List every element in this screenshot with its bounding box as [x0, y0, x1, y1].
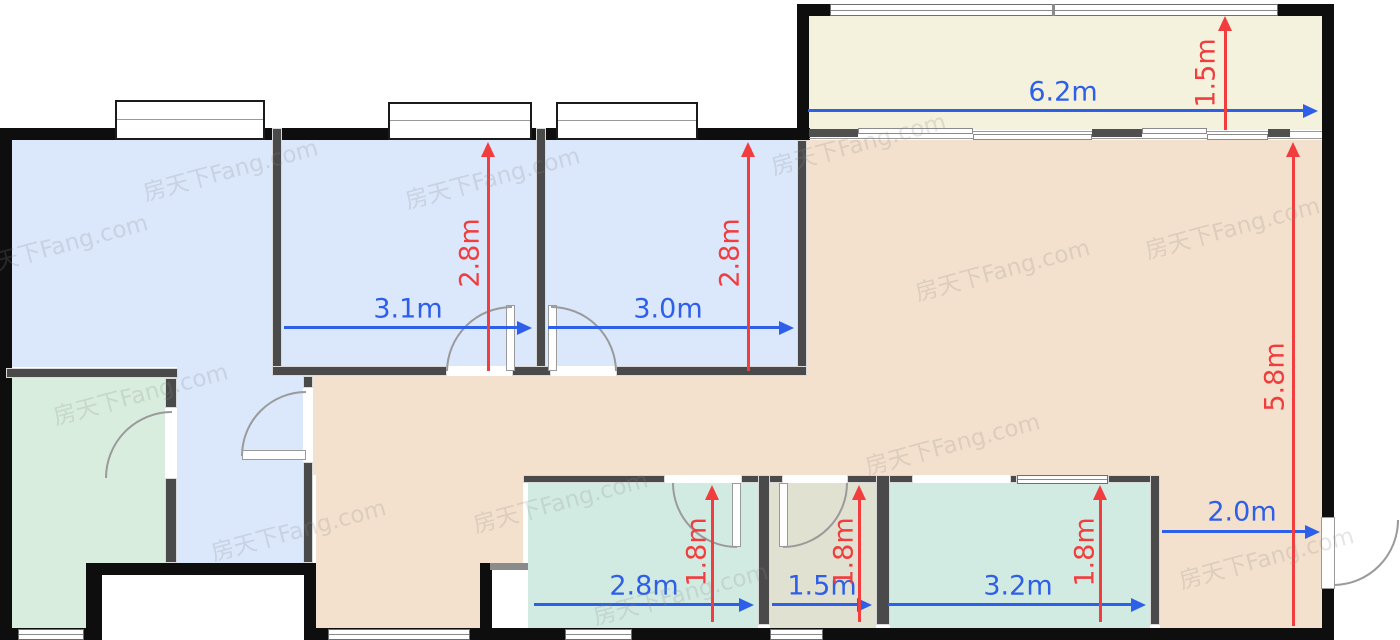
wall-balcony-left — [797, 4, 809, 140]
dim-label-1.8m: 1.8m — [1070, 517, 1101, 586]
wall-green-room-top — [6, 368, 178, 378]
dim-line-1.5m — [772, 603, 859, 606]
wall-bedrooms-bottom — [512, 366, 551, 376]
dim-arrowhead — [1305, 525, 1320, 539]
dim-label-5.8m: 5.8m — [1260, 342, 1291, 411]
dim-arrowhead — [852, 485, 866, 500]
room-bedroom-right — [546, 140, 797, 366]
wall-bath-right — [1150, 475, 1160, 625]
dim-label-1.8m: 1.8m — [682, 517, 713, 586]
dim-label-2.8m: 2.8m — [609, 571, 678, 602]
window-bathroom-top — [1017, 475, 1108, 484]
sliding-door-frame — [809, 129, 858, 137]
dim-arrowhead — [779, 321, 794, 335]
wall-bedrooms-bottom — [616, 366, 807, 376]
entrance-door-arc — [1334, 520, 1398, 585]
window-bottom — [18, 629, 84, 640]
dim-line-6.2m — [808, 109, 1305, 112]
sliding-door-panel — [858, 128, 973, 134]
bay-window — [388, 102, 532, 140]
room-bathroom-right — [890, 483, 1150, 628]
dim-label-1.5m: 1.5m — [1191, 38, 1222, 107]
dim-label-3.1m: 3.1m — [373, 294, 442, 325]
room-living-dining — [316, 475, 523, 563]
dim-arrowhead — [517, 321, 532, 335]
wall-shaft-connector — [490, 563, 528, 570]
door-opening — [165, 408, 177, 478]
balcony-window-mullion — [1052, 4, 1055, 16]
wall-bedroom-living — [797, 140, 807, 376]
dim-arrowhead — [739, 598, 754, 612]
dim-line-5.8m — [1292, 155, 1295, 626]
wall-hallway-right — [303, 376, 313, 388]
bay-window — [115, 100, 265, 140]
sliding-door-frame — [1092, 129, 1142, 137]
door-leaf — [779, 483, 788, 547]
door-leaf — [506, 305, 515, 371]
room-living-dining — [313, 376, 1322, 475]
dim-line-1.5m — [1224, 29, 1227, 130]
dim-label-3.2m: 3.2m — [983, 571, 1052, 602]
room-hallway — [177, 367, 303, 563]
window-bottom — [770, 629, 823, 640]
wall-hallway-right — [303, 462, 313, 563]
door-leaf — [242, 450, 306, 460]
wall-bedrooms-bottom — [272, 366, 447, 376]
dim-arrowhead — [1131, 598, 1146, 612]
floor-plan: 6.2m3.1m3.0m2.0m2.8m1.5m3.2m2.8m2.8m1.5m… — [0, 0, 1400, 640]
wall-green-room-right — [165, 478, 177, 563]
dim-line-2.8m — [534, 603, 741, 606]
dim-arrowhead — [741, 142, 755, 157]
wall-green-room-right — [165, 378, 177, 408]
wall-shaft-left — [480, 563, 492, 640]
dim-line-3.2m — [888, 603, 1133, 606]
dim-arrowhead — [705, 485, 719, 500]
dim-arrowhead — [1093, 485, 1107, 500]
wall-outer-right — [1322, 4, 1334, 518]
wall-bedroom-divider — [272, 128, 282, 376]
sliding-door-panel — [1207, 134, 1268, 140]
bay-window — [556, 102, 698, 140]
wall-outer-left — [0, 128, 12, 640]
room-green — [12, 378, 165, 563]
dim-arrowhead — [1286, 142, 1300, 157]
room-bathroom-left — [528, 483, 758, 628]
dim-label-1.8m: 1.8m — [829, 517, 860, 586]
dim-arrowhead — [1303, 104, 1318, 118]
dim-label-3.0m: 3.0m — [633, 294, 702, 325]
wall-bath-divider — [758, 475, 770, 625]
wall-bath-strip-top — [523, 475, 665, 483]
room-bedroom-left — [12, 140, 272, 367]
door-leaf — [732, 483, 741, 547]
room-balcony — [809, 16, 1322, 130]
dim-arrowhead — [1218, 16, 1232, 31]
room-green — [12, 563, 86, 628]
sliding-door-panel — [1142, 128, 1207, 134]
room-bedroom-middle — [282, 140, 536, 366]
door-leaf — [548, 305, 557, 371]
window-bottom — [565, 629, 632, 640]
entrance-door-leaf — [1321, 517, 1335, 589]
sliding-door-frame — [1268, 129, 1290, 137]
wall-notch-top — [86, 563, 316, 575]
wall-bath-strip-top — [1010, 475, 1017, 483]
dim-line-2.8m — [747, 155, 750, 371]
dim-line-2.0m — [1162, 530, 1307, 533]
dim-label-2.8m: 2.8m — [715, 218, 746, 287]
wall-notch-right — [304, 563, 316, 640]
wall-bedroom-divider — [536, 128, 546, 376]
dim-label-2.8m: 2.8m — [455, 218, 486, 287]
dim-arrowhead — [481, 142, 495, 157]
dim-label-6.2m: 6.2m — [1028, 77, 1097, 108]
dim-line-2.8m — [487, 155, 490, 371]
window-bottom — [328, 629, 470, 640]
room-living-dining — [316, 563, 480, 628]
dim-label-2.0m: 2.0m — [1207, 497, 1276, 528]
room-living-dining — [807, 140, 1322, 376]
dim-line-3.1m — [284, 326, 519, 329]
sliding-door-panel — [973, 134, 1092, 140]
